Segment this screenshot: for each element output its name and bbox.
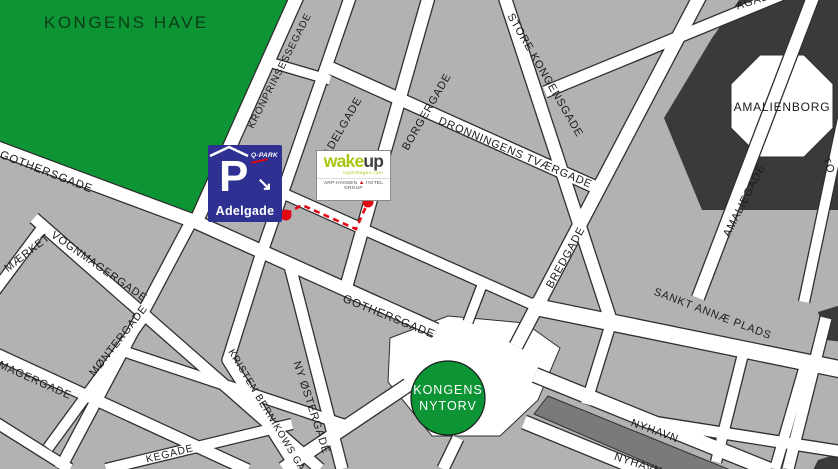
parking-direction-arrow-icon: ↘ [257, 174, 272, 195]
hotel-brand-wake: wake [324, 151, 364, 171]
parking-p-symbol: P [219, 155, 248, 199]
hotel-brand: wakeup [317, 154, 390, 170]
square-label-line2: NYTORV [398, 399, 498, 415]
qpark-logo: Q-PARK [251, 152, 278, 162]
palace-label: AMALIENBORG [730, 100, 834, 114]
hotel-group-line: ARP-HANSEN ▲ HOTEL GROUP [317, 178, 390, 192]
qpark-swoosh-icon [251, 158, 268, 163]
square-label-line1: KONGENS [398, 383, 498, 399]
copenhagen-parking-map: KONGENS HAVE AMALIENBORG KONGENS NYTORV … [0, 0, 838, 469]
hotel-brand-up: up [363, 151, 383, 171]
parking-sign: P Q-PARK ↘ Adelgade [208, 145, 282, 222]
route-start-dot [281, 210, 292, 221]
parking-street-name: Adelgade [208, 204, 282, 218]
square-label: KONGENS NYTORV [398, 383, 498, 414]
park-label: KONGENS HAVE [44, 13, 209, 33]
hotel-logo-box: wakeup copenhagen.com ARP-HANSEN ▲ HOTEL… [316, 150, 391, 201]
